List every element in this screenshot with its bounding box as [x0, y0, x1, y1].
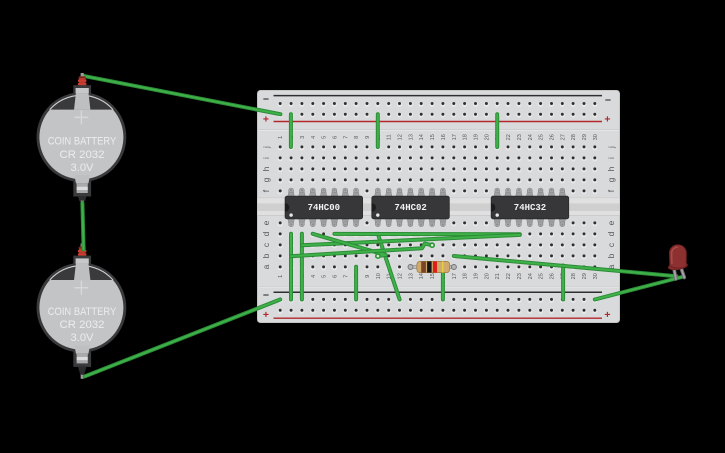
svg-text:5: 5: [322, 136, 328, 139]
svg-text:g: g: [261, 177, 271, 182]
svg-text:CR 2032: CR 2032: [60, 149, 105, 161]
svg-text:6: 6: [332, 275, 338, 278]
svg-text:11: 11: [387, 134, 393, 140]
svg-text:22: 22: [506, 273, 512, 279]
svg-text:i: i: [261, 157, 271, 159]
svg-text:9: 9: [365, 275, 371, 278]
svg-text:d: d: [261, 231, 271, 236]
svg-text:b: b: [261, 253, 271, 258]
svg-text:12: 12: [398, 134, 404, 140]
svg-text:29: 29: [582, 134, 588, 140]
svg-text:e: e: [606, 220, 616, 225]
svg-text:3.0V: 3.0V: [71, 162, 95, 174]
svg-text:20: 20: [484, 273, 490, 279]
svg-text:i: i: [606, 157, 616, 159]
svg-text:4: 4: [311, 136, 317, 139]
svg-text:6: 6: [332, 136, 338, 139]
svg-text:COIN BATTERY: COIN BATTERY: [48, 306, 117, 318]
svg-text:19: 19: [474, 134, 480, 140]
svg-text:74HC32: 74HC32: [514, 203, 546, 213]
svg-text:j: j: [606, 146, 616, 149]
svg-text:26: 26: [550, 273, 556, 279]
svg-text:74HC00: 74HC00: [308, 203, 340, 213]
svg-text:7: 7: [343, 136, 349, 139]
svg-text:19: 19: [474, 273, 480, 279]
svg-text:28: 28: [571, 134, 577, 140]
svg-text:+: +: [604, 114, 610, 126]
svg-text:−: −: [605, 94, 611, 106]
svg-text:16: 16: [441, 134, 447, 140]
svg-text:5: 5: [322, 275, 328, 278]
svg-text:25: 25: [539, 134, 545, 140]
svg-text:18: 18: [463, 134, 469, 140]
svg-text:13: 13: [408, 134, 414, 140]
svg-text:74HC02: 74HC02: [394, 203, 426, 213]
svg-text:15: 15: [430, 134, 436, 140]
svg-text:COIN BATTERY: COIN BATTERY: [48, 136, 117, 148]
svg-text:15: 15: [430, 273, 436, 279]
svg-text:30: 30: [593, 134, 599, 140]
svg-text:h: h: [261, 166, 271, 171]
svg-text:23: 23: [517, 273, 523, 279]
svg-text:g: g: [606, 177, 616, 182]
svg-text:17: 17: [452, 273, 458, 279]
svg-text:23: 23: [517, 134, 523, 140]
svg-text:27: 27: [560, 134, 566, 140]
svg-text:25: 25: [539, 273, 545, 279]
svg-text:−: −: [263, 93, 269, 105]
svg-text:a: a: [261, 264, 271, 269]
svg-text:+: +: [263, 114, 269, 126]
svg-text:7: 7: [343, 275, 349, 278]
svg-text:24: 24: [528, 273, 534, 279]
svg-text:3: 3: [300, 136, 306, 139]
svg-text:14: 14: [419, 273, 425, 279]
svg-text:1: 1: [278, 275, 284, 278]
svg-text:4: 4: [311, 275, 317, 278]
svg-text:12: 12: [398, 273, 404, 279]
svg-text:h: h: [606, 166, 616, 171]
svg-text:20: 20: [484, 134, 490, 140]
svg-text:28: 28: [571, 273, 577, 279]
svg-text:29: 29: [582, 273, 588, 279]
svg-text:22: 22: [506, 134, 512, 140]
svg-text:e: e: [261, 220, 271, 225]
svg-text:+: +: [263, 309, 269, 321]
svg-text:9: 9: [365, 136, 371, 139]
svg-text:+: +: [604, 309, 610, 321]
svg-text:CR 2032: CR 2032: [60, 319, 105, 331]
svg-text:26: 26: [550, 134, 556, 140]
svg-text:21: 21: [495, 273, 501, 279]
svg-text:18: 18: [463, 273, 469, 279]
svg-text:3.0V: 3.0V: [71, 332, 95, 344]
svg-text:1: 1: [278, 136, 284, 139]
svg-text:8: 8: [354, 136, 360, 139]
svg-text:24: 24: [528, 134, 534, 140]
svg-text:17: 17: [452, 134, 458, 140]
svg-text:−: −: [263, 290, 269, 302]
svg-text:30: 30: [593, 273, 599, 279]
svg-text:b: b: [606, 253, 616, 258]
svg-text:14: 14: [419, 134, 425, 140]
svg-text:j: j: [261, 146, 271, 149]
svg-text:13: 13: [408, 273, 414, 279]
svg-text:d: d: [606, 231, 616, 236]
svg-text:10: 10: [376, 273, 382, 279]
